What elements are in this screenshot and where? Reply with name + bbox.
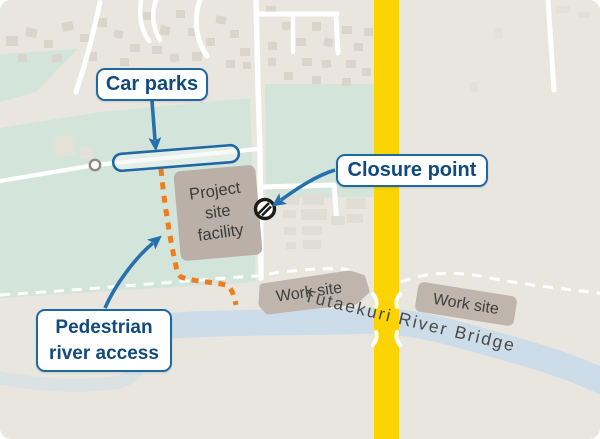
closure-point-icon — [256, 200, 275, 219]
closure-point-callout-text: Closure point — [348, 159, 477, 182]
highway-road — [374, 0, 399, 439]
map-frame: Work site Work site Tutaekuri River Brid… — [0, 0, 600, 439]
pedestrian-callout-line1: Pedestrian — [55, 315, 152, 341]
pedestrian-callout-line2: river access — [49, 341, 159, 367]
car-parks-callout: Car parks — [96, 68, 208, 101]
svg-text:site: site — [204, 201, 232, 222]
site-map: Work site Work site Tutaekuri River Brid… — [0, 0, 600, 439]
project-site-facility-area: Project site facility — [173, 165, 263, 262]
road-endpoint-dot — [90, 160, 100, 170]
car-parks-callout-text: Car parks — [106, 73, 198, 96]
closure-point-callout: Closure point — [336, 154, 488, 187]
pedestrian-river-access-callout: Pedestrian river access — [36, 309, 172, 372]
